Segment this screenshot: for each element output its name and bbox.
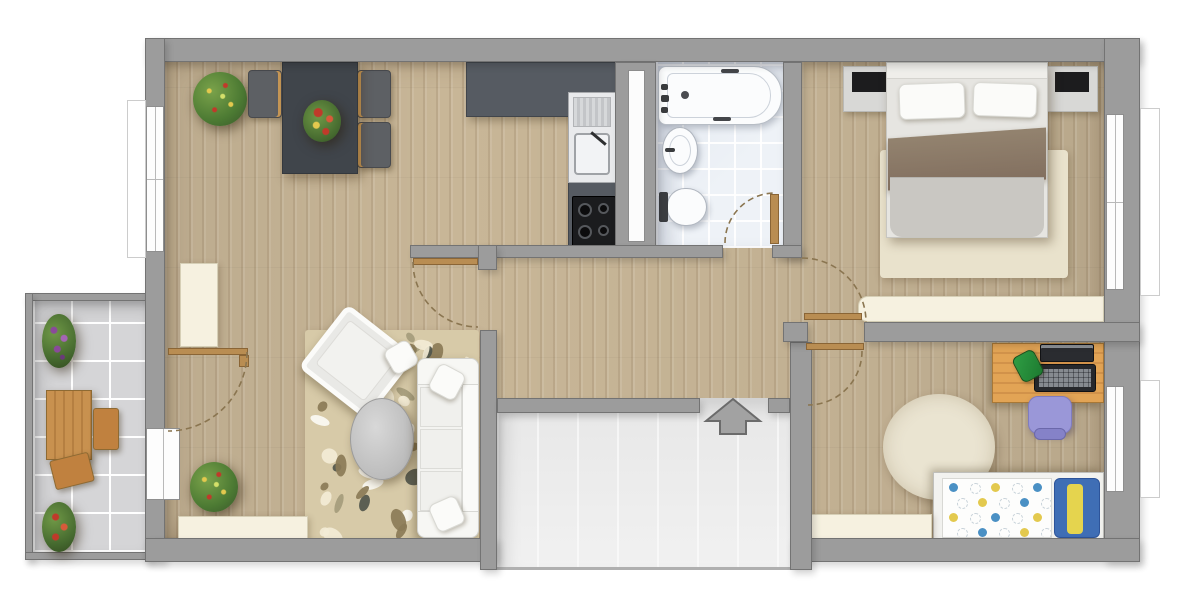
kids-door-leaf <box>806 343 864 350</box>
duvet-dot <box>1033 513 1042 522</box>
window-reveal <box>1140 108 1160 296</box>
duvet-dot <box>999 498 1010 509</box>
kids-left-wall <box>790 342 812 570</box>
rug-spot <box>335 454 347 476</box>
bed-pillow <box>898 82 965 120</box>
balcony-rail-bottom <box>25 552 150 560</box>
duvet-dot <box>949 513 958 522</box>
kids-pillow <box>1054 478 1100 538</box>
radiator <box>180 263 218 347</box>
landing-top-post <box>768 398 790 413</box>
bedroom-window <box>1106 114 1124 290</box>
polka-dot-duvet <box>942 478 1052 538</box>
bathtub-tap <box>661 95 669 102</box>
sofa-cushion <box>420 429 462 469</box>
sink-drainer <box>573 97 611 127</box>
balcony-chair <box>93 408 119 450</box>
window-reveal <box>127 100 146 258</box>
burner <box>598 203 609 214</box>
bedside-lamp <box>1055 72 1089 92</box>
toilet <box>659 186 707 228</box>
bathtub <box>658 66 782 125</box>
balcony-door <box>146 428 180 500</box>
flower-pot-red <box>42 502 76 552</box>
dining-chair <box>357 122 391 168</box>
duvet-dot <box>957 498 968 509</box>
rug-spot <box>332 493 345 514</box>
potted-plant <box>190 462 238 512</box>
desk-chair <box>1026 396 1074 444</box>
living-door-jamb <box>239 355 249 367</box>
duvet-dot <box>957 528 968 538</box>
kids-window <box>1106 386 1124 492</box>
duvet-dot <box>991 513 1000 522</box>
burner <box>578 225 592 239</box>
burner <box>578 203 592 217</box>
keyboard <box>1034 364 1096 392</box>
dining-window <box>146 106 164 252</box>
washbasin-tap <box>665 148 675 152</box>
duvet-dot <box>949 483 958 492</box>
duvet-dot <box>999 528 1010 538</box>
bed-duvet <box>890 177 1044 237</box>
duvet-dot <box>978 528 987 537</box>
service-shaft <box>628 70 645 242</box>
bedroom-kids-wall <box>864 322 1140 342</box>
desk-chair-back <box>1034 428 1066 440</box>
radiator <box>804 514 932 540</box>
door-stub <box>478 245 497 270</box>
duvet-dot <box>991 483 1000 492</box>
bedroom-sideboard <box>858 296 1104 322</box>
toilet-tank <box>659 192 668 222</box>
dining-chair <box>357 70 391 118</box>
bathtub-tap <box>661 84 668 90</box>
landing-top-wall <box>497 398 700 413</box>
rug-spot <box>309 413 331 428</box>
headboard <box>887 63 1047 79</box>
sink-basin <box>574 133 610 175</box>
duvet-dot <box>1041 528 1052 538</box>
window-reveal <box>1140 380 1160 498</box>
kitchen-sink <box>568 92 616 183</box>
flower-pot-purple <box>42 314 76 368</box>
kids-pillow-stripe <box>1067 484 1083 534</box>
bedroom-door-post <box>783 322 808 342</box>
bathtub-handle <box>721 69 739 73</box>
bathtub-drain <box>681 91 689 99</box>
duvet-dot <box>1041 498 1052 509</box>
rug-spot <box>318 489 334 507</box>
sofa <box>417 358 479 538</box>
balcony-rail-top <box>25 293 150 301</box>
toilet-bowl <box>667 188 707 226</box>
duvet-dot <box>970 483 981 494</box>
balcony-table <box>46 390 92 460</box>
hallway-top-wall <box>410 245 723 258</box>
coffee-table <box>350 398 414 480</box>
outer-wall-top <box>145 38 1140 62</box>
cooktop <box>572 196 616 248</box>
duvet-dot <box>1012 483 1023 494</box>
duvet-dot <box>1020 498 1029 507</box>
duvet-dot <box>978 498 987 507</box>
dining-door-leaf <box>413 258 478 265</box>
potted-plant <box>193 72 247 126</box>
bed-pillow <box>972 82 1037 118</box>
dining-chair <box>248 70 282 118</box>
duvet-dot <box>1033 483 1042 492</box>
kids-bed <box>933 472 1104 542</box>
living-hall-wall <box>480 330 497 570</box>
bathroom-door-leaf <box>770 194 779 244</box>
bedroom-door-leaf <box>804 313 862 320</box>
burner <box>598 225 609 236</box>
rug-spot <box>316 399 330 413</box>
bathtub-tap <box>661 107 668 113</box>
bathtub-handle <box>713 117 731 121</box>
flower-centerpiece <box>303 100 341 142</box>
washbasin <box>662 127 698 174</box>
floor-plan <box>0 0 1200 600</box>
balcony-rail-left <box>25 293 33 560</box>
bath-bedroom-wall <box>783 62 802 258</box>
outer-wall-bottom-right <box>790 538 1140 562</box>
duvet-dot <box>970 513 981 524</box>
double-bed <box>886 62 1048 238</box>
bedside-lamp <box>852 72 886 92</box>
keyboard-keys <box>1039 369 1091 387</box>
laptop <box>1040 344 1094 362</box>
hallway-top-wall-right <box>772 245 802 258</box>
outer-wall-bottom-left <box>145 538 497 562</box>
living-door-leaf <box>168 348 248 355</box>
duvet-dot <box>1020 528 1029 537</box>
entrance-landing <box>497 398 790 570</box>
duvet-dot <box>1012 513 1023 524</box>
